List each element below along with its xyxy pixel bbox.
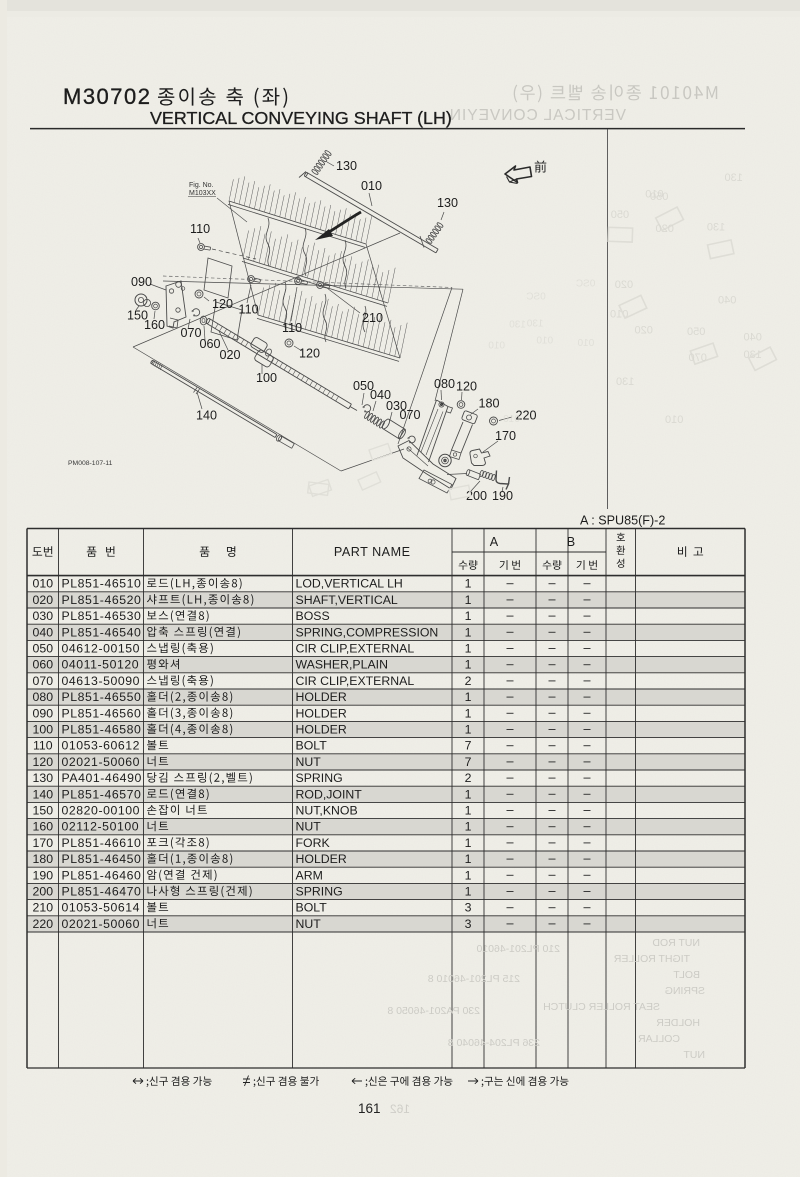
svg-text:0SC: 0SC (576, 279, 595, 290)
svg-text:040: 040 (33, 625, 54, 639)
svg-text:020: 020 (220, 348, 241, 362)
svg-text:010: 010 (503, 414, 520, 425)
svg-text:NUT: NUT (296, 755, 322, 769)
svg-text:NUT: NUT (296, 820, 322, 834)
svg-text:HOLDER: HOLDER (296, 723, 347, 737)
svg-text:M30702: M30702 (63, 84, 152, 109)
svg-text:215 PL201-46010 8: 215 PL201-46010 8 (428, 973, 520, 985)
svg-text:020: 020 (634, 325, 652, 337)
svg-text:090: 090 (131, 275, 152, 289)
svg-text:02021-50060: 02021-50060 (62, 755, 141, 769)
svg-text:210: 210 (33, 901, 54, 915)
svg-text:M103XX: M103XX (189, 190, 216, 197)
svg-text:080: 080 (33, 690, 54, 704)
svg-text:B: B (567, 535, 575, 549)
svg-text:BOLT: BOLT (296, 901, 328, 915)
svg-text:1: 1 (465, 852, 472, 866)
svg-text:180: 180 (33, 852, 54, 866)
svg-text:120: 120 (299, 347, 320, 361)
svg-text:160: 160 (144, 318, 165, 332)
svg-text:CIR CLIP,EXTERNAL: CIR CLIP,EXTERNAL (296, 674, 415, 688)
svg-text:PL851-46470: PL851-46470 (62, 885, 142, 899)
svg-text:2: 2 (465, 674, 472, 688)
svg-text:04613-50090: 04613-50090 (62, 674, 141, 688)
svg-text:130: 130 (526, 319, 543, 330)
svg-text:PM008-107-11: PM008-107-11 (68, 460, 113, 467)
svg-text:050: 050 (33, 642, 54, 656)
svg-text:3: 3 (465, 901, 472, 915)
svg-text:CIR CLIP,EXTERNAL: CIR CLIP,EXTERNAL (296, 642, 415, 656)
svg-text:PL851-46520: PL851-46520 (62, 593, 142, 607)
svg-text:110: 110 (239, 303, 259, 317)
svg-text:ROD,JOINT: ROD,JOINT (296, 787, 363, 801)
svg-text:COLLAR: COLLAR (638, 1033, 680, 1045)
svg-text:PL851-46450: PL851-46450 (62, 852, 142, 866)
svg-text:190: 190 (492, 489, 513, 503)
svg-text:PL851-46530: PL851-46530 (62, 609, 142, 623)
svg-text:130: 130 (336, 159, 357, 173)
svg-text:VERTICAL CONVEYING SHAFT (LH): VERTICAL CONVEYING SHAFT (LH) (150, 108, 452, 128)
svg-text:PL851-46510: PL851-46510 (62, 577, 142, 591)
svg-text:100: 100 (256, 371, 277, 385)
svg-text:NUT ROD: NUT ROD (652, 937, 700, 949)
svg-text:150: 150 (33, 804, 54, 818)
svg-text:130: 130 (437, 196, 458, 210)
svg-text:PL851-46550: PL851-46550 (62, 690, 142, 704)
svg-text:01053-50614: 01053-50614 (62, 901, 141, 915)
svg-text:A: A (490, 535, 499, 549)
svg-text:140: 140 (196, 409, 217, 423)
svg-text:1: 1 (465, 642, 472, 656)
svg-text:PART NAME: PART NAME (334, 545, 411, 559)
svg-text:010: 010 (665, 414, 683, 426)
svg-text:HOLDER: HOLDER (656, 1017, 700, 1029)
svg-text:1: 1 (465, 609, 472, 623)
svg-text:1: 1 (465, 804, 472, 818)
svg-text:1: 1 (465, 723, 472, 737)
svg-text:1: 1 (465, 577, 472, 591)
svg-text:BOSS: BOSS (296, 609, 330, 623)
svg-text:060: 060 (200, 337, 221, 351)
svg-text:HOLDER: HOLDER (296, 690, 347, 704)
svg-text:0SC: 0SC (526, 292, 545, 303)
svg-text:040: 040 (718, 295, 736, 307)
svg-text:100: 100 (33, 723, 54, 737)
svg-text:Fig. No.: Fig. No. (189, 182, 214, 189)
svg-text:060: 060 (33, 658, 54, 672)
svg-text:BOLT: BOLT (673, 969, 700, 981)
svg-text:BOLT: BOLT (296, 739, 328, 753)
svg-text:PL851-46560: PL851-46560 (62, 706, 142, 720)
svg-text:1: 1 (465, 706, 472, 720)
svg-text:1: 1 (465, 690, 472, 704)
svg-text:070: 070 (33, 674, 54, 688)
svg-text:WASHER,PLAIN: WASHER,PLAIN (296, 658, 388, 672)
svg-text:HOLDER: HOLDER (296, 706, 347, 720)
svg-text:1: 1 (465, 625, 472, 639)
svg-text:04612-00150: 04612-00150 (62, 642, 141, 656)
svg-text:180: 180 (479, 397, 500, 411)
svg-text:220: 220 (33, 917, 54, 931)
svg-text:050: 050 (687, 326, 705, 338)
svg-text:010: 010 (361, 179, 382, 193)
svg-text:070: 070 (400, 408, 421, 422)
svg-text:2: 2 (465, 771, 472, 785)
svg-text:1: 1 (465, 836, 472, 850)
svg-text:010: 010 (488, 340, 505, 351)
svg-text:PL851-46580: PL851-46580 (62, 723, 142, 737)
svg-text:SEAT ROLLER CLUTCH: SEAT ROLLER CLUTCH (543, 1001, 660, 1013)
svg-text:110: 110 (282, 321, 302, 335)
svg-text:070: 070 (688, 352, 706, 364)
svg-text:130: 130 (33, 771, 54, 785)
svg-text:02112-50100: 02112-50100 (62, 820, 140, 834)
svg-text:PL851-46570: PL851-46570 (62, 787, 142, 801)
svg-text:010: 010 (536, 335, 553, 346)
svg-text:SPRING,COMPRESSION: SPRING,COMPRESSION (296, 625, 439, 639)
svg-text:1: 1 (465, 820, 472, 834)
svg-text:NUT: NUT (296, 917, 322, 931)
svg-text:A : SPU85(F)-2: A : SPU85(F)-2 (580, 514, 665, 528)
svg-text:110: 110 (33, 739, 53, 753)
svg-text:170: 170 (495, 429, 516, 443)
svg-text:130: 130 (616, 376, 634, 388)
svg-text:010: 010 (577, 338, 594, 349)
svg-text:02021-50060: 02021-50060 (62, 917, 141, 931)
svg-text:01053-60612: 01053-60612 (62, 739, 141, 753)
svg-text:SHAFT,VERTICAL: SHAFT,VERTICAL (296, 593, 398, 607)
svg-text:PL851-46610: PL851-46610 (62, 836, 142, 850)
svg-text:236 PL204-46040 8: 236 PL204-46040 8 (448, 1037, 540, 1049)
svg-text:SPRING: SPRING (296, 885, 343, 899)
svg-text:120: 120 (33, 755, 54, 769)
svg-text:170: 170 (33, 836, 54, 850)
svg-text:NUT,KNOB: NUT,KNOB (296, 804, 358, 818)
svg-text:010: 010 (645, 189, 663, 201)
svg-text:230 PA201-46050 8: 230 PA201-46050 8 (387, 1005, 480, 1017)
svg-text:04011-50120: 04011-50120 (62, 658, 140, 672)
svg-text:FORK: FORK (296, 836, 331, 850)
svg-text:7: 7 (465, 755, 472, 769)
svg-text:NUT: NUT (683, 1049, 705, 1061)
svg-text:140: 140 (33, 787, 54, 801)
svg-text:090: 090 (33, 706, 54, 720)
svg-text:PL851-46460: PL851-46460 (62, 868, 142, 882)
svg-text:LOD,VERTICAL LH: LOD,VERTICAL LH (296, 577, 403, 591)
svg-text:PA401-46490: PA401-46490 (62, 771, 142, 785)
svg-text:020: 020 (615, 279, 633, 291)
svg-text:1: 1 (465, 658, 472, 672)
svg-text:200: 200 (33, 885, 54, 899)
svg-text:160: 160 (33, 820, 54, 834)
svg-text:ARM: ARM (296, 868, 323, 882)
svg-text:SPRING: SPRING (665, 985, 705, 997)
svg-text:070: 070 (181, 326, 202, 340)
svg-text:030: 030 (33, 609, 54, 623)
svg-text:VERTICAL CONVEYIN: VERTICAL CONVEYIN (449, 107, 626, 124)
svg-text:HOLDER: HOLDER (296, 852, 347, 866)
svg-text:3: 3 (465, 917, 472, 931)
svg-text:1: 1 (465, 593, 472, 607)
svg-text:130: 130 (707, 222, 725, 234)
svg-text:TIGHT ROLLER: TIGHT ROLLER (613, 953, 690, 965)
svg-text:190: 190 (33, 868, 54, 882)
svg-text:010: 010 (33, 577, 54, 591)
svg-text:7: 7 (465, 739, 472, 753)
svg-text:020: 020 (33, 593, 54, 607)
svg-text:210 PL201-46010: 210 PL201-46010 (476, 943, 560, 955)
svg-text:PL851-46540: PL851-46540 (62, 625, 142, 639)
svg-text:02820-00100: 02820-00100 (62, 804, 141, 818)
svg-text:130: 130 (509, 320, 526, 331)
svg-text:162: 162 (390, 1102, 410, 1116)
svg-text:020: 020 (655, 223, 673, 235)
svg-text:161: 161 (358, 1101, 381, 1116)
svg-text:SPRING: SPRING (296, 771, 343, 785)
svg-text:130: 130 (724, 172, 742, 184)
svg-text:1: 1 (465, 885, 472, 899)
svg-text:1: 1 (465, 787, 472, 801)
svg-text:110: 110 (190, 222, 210, 236)
svg-text:210: 210 (362, 311, 383, 325)
svg-text:080: 080 (434, 377, 455, 391)
svg-text:120: 120 (456, 380, 477, 394)
svg-text:040: 040 (743, 331, 761, 343)
svg-text:050: 050 (611, 209, 629, 221)
svg-text:1: 1 (465, 868, 472, 882)
